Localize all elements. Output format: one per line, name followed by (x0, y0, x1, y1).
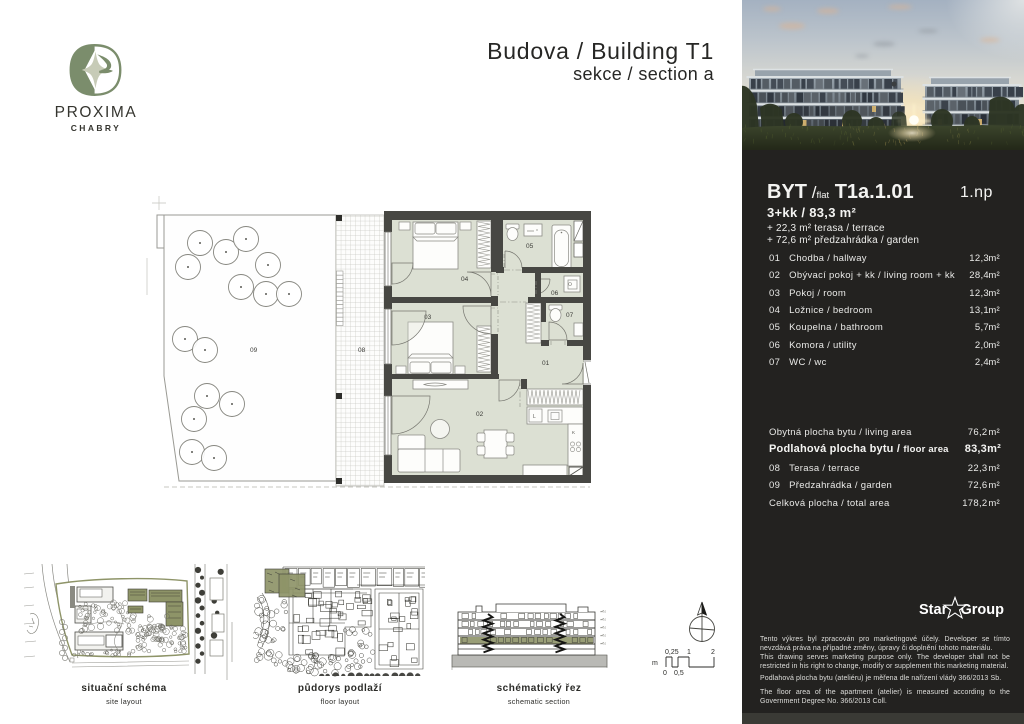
svg-text:m: m (652, 660, 658, 667)
svg-text:01: 01 (542, 360, 550, 367)
svg-text:07: 07 (566, 312, 574, 319)
svg-text:2: 2 (711, 649, 715, 656)
svg-text:+0,0: +0,0 (601, 642, 607, 646)
svg-text:+0,0: +0,0 (601, 610, 607, 614)
svg-text:02: 02 (476, 411, 484, 418)
svg-text:09: 09 (250, 347, 258, 354)
svg-text:06: 06 (551, 290, 559, 297)
svg-text:04: 04 (461, 276, 469, 283)
svg-text:+0,0: +0,0 (601, 634, 607, 638)
svg-text:0: 0 (663, 670, 667, 676)
svg-text:05: 05 (526, 243, 534, 250)
svg-text:L: L (533, 414, 536, 420)
svg-text:Star: Star (919, 602, 948, 618)
svg-text:0,25: 0,25 (665, 649, 679, 656)
svg-text:1: 1 (687, 649, 691, 656)
svg-text:K: K (572, 430, 575, 435)
svg-text:Group: Group (961, 602, 1005, 618)
svg-text:+0,0: +0,0 (601, 626, 607, 630)
svg-text:+0,0: +0,0 (601, 618, 607, 622)
svg-text:0,5: 0,5 (674, 670, 684, 676)
svg-text:08: 08 (358, 347, 366, 354)
